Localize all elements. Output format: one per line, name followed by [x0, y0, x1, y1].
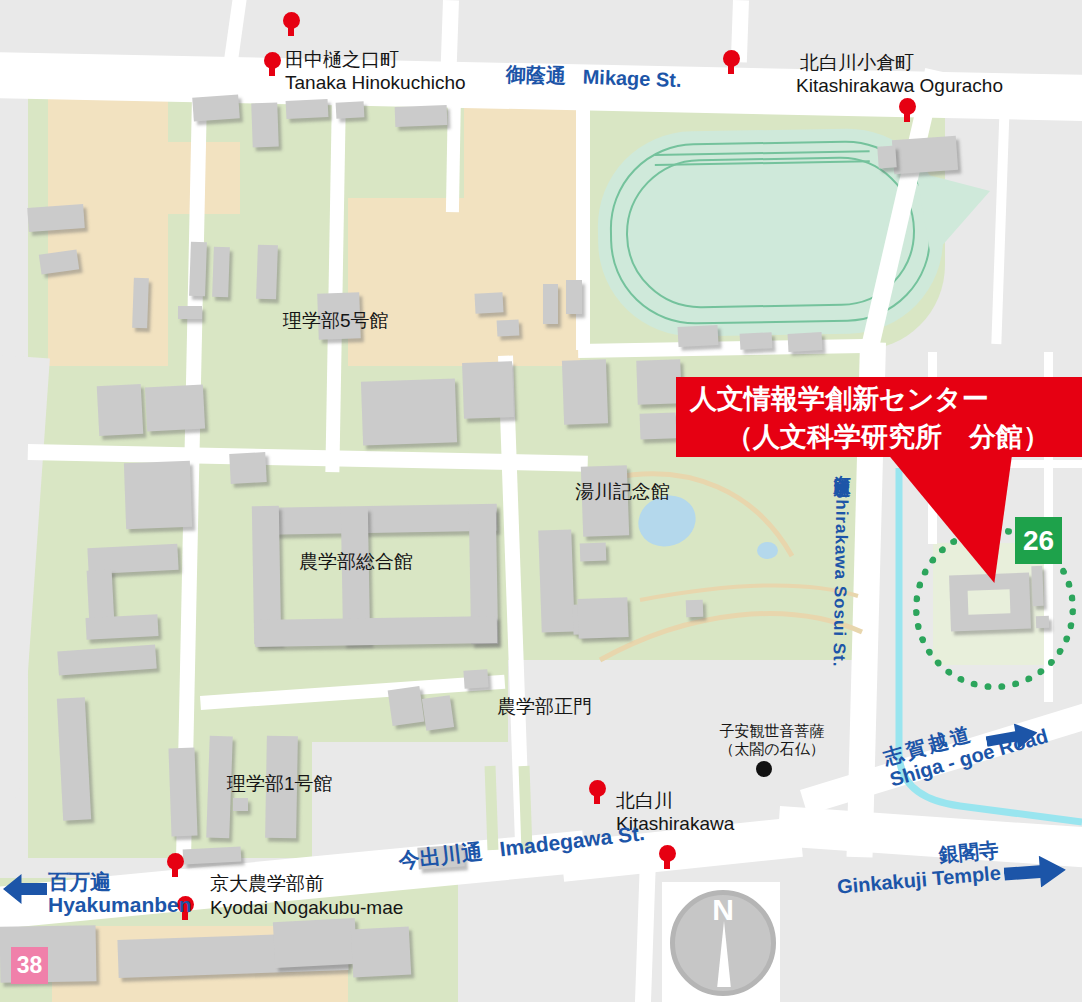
building — [212, 247, 230, 298]
building — [543, 284, 558, 324]
park-path — [640, 585, 858, 600]
destination-hyakumanben-ja: 百万遍 — [48, 870, 192, 893]
bus-stop-pin — [723, 50, 740, 67]
street-shirakawa-sosui-ja: 白河疎水通 — [831, 462, 854, 467]
compass-box: N — [662, 882, 780, 1002]
building — [85, 614, 158, 640]
building — [336, 101, 365, 118]
building — [497, 319, 520, 336]
compass-north-label: N — [675, 893, 771, 927]
building — [273, 918, 357, 968]
landmark-koyasu-line1: 子安観世音菩薩 — [692, 722, 852, 740]
campus-map: 人文情報学創新センター （人文科学研究所 分館） 26 38 田中樋之口町 Ta… — [0, 0, 1082, 1002]
building — [145, 385, 205, 432]
building-nogakubu-sogo — [255, 616, 497, 647]
building — [678, 325, 719, 347]
bus-stop-pin — [167, 853, 184, 870]
street-shirakawa-sosui-en: Shirakawa Sosui St. — [828, 487, 851, 668]
landmark-koyasu: 子安観世音菩薩 （太閤の石仏） — [692, 722, 852, 758]
building — [233, 798, 248, 811]
building — [892, 136, 958, 174]
building — [577, 597, 628, 639]
bus-stop-tanaka-ja: 田中樋之口町 — [285, 49, 399, 71]
building — [538, 529, 575, 632]
label-rigakubu5: 理学部5号館 — [283, 310, 389, 332]
building — [686, 600, 704, 618]
label-nogakubu-sogo: 農学部総合館 — [299, 551, 413, 573]
building — [636, 359, 682, 405]
bus-stop-pin — [264, 52, 281, 69]
building — [178, 306, 202, 319]
building — [132, 278, 149, 328]
bus-stop-tanaka-en: Tanaka Hinokuchicho — [285, 72, 466, 94]
label-yukawa: 湯川記念館 — [575, 481, 670, 503]
bus-stop-pin — [659, 845, 676, 862]
building — [229, 452, 267, 484]
label-rigakubu1: 理学部1号館 — [227, 773, 333, 795]
pond — [757, 542, 778, 559]
bus-stop-oguracho-en: Kitashirakawa Oguracho — [796, 75, 1003, 97]
building — [192, 94, 240, 121]
building — [251, 103, 279, 148]
building — [286, 99, 329, 119]
building — [788, 332, 823, 352]
park-path — [600, 614, 862, 660]
building — [395, 105, 448, 127]
bus-stop-oguracho-ja: 北白川小倉町 — [800, 52, 914, 74]
building — [189, 242, 207, 297]
building — [740, 332, 773, 350]
landmark-koyasu-line2: （太閤の石仏） — [692, 740, 852, 758]
bus-stop-pin — [589, 780, 606, 797]
building — [422, 695, 454, 731]
compass-needle-icon — [707, 921, 741, 987]
building — [168, 748, 197, 837]
building — [580, 543, 607, 562]
bus-stop-pin — [899, 98, 916, 115]
building — [97, 384, 144, 436]
building — [462, 361, 514, 419]
building — [256, 245, 278, 300]
building — [361, 378, 457, 445]
bus-stop-nogakubu-mae-ja: 京大農学部前 — [210, 873, 324, 895]
banner-line1: 人文情報学創新センター — [690, 380, 1082, 418]
street-mikage-ja: 御蔭通 — [506, 63, 567, 87]
building — [566, 280, 582, 314]
banner-line2: （人文科学研究所 分館） — [690, 418, 1082, 456]
building-nogakubu-sogo — [253, 504, 497, 535]
building — [124, 461, 192, 529]
building — [27, 204, 85, 232]
building — [474, 292, 503, 313]
compass: N — [670, 890, 776, 996]
label-nogakubu-seimon: 農学部正門 — [497, 696, 592, 718]
building — [388, 686, 425, 726]
destination-hyakumanben-en: Hyakumanben — [48, 893, 192, 916]
destination-banner: 人文情報学創新センター （人文科学研究所 分館） — [676, 377, 1082, 457]
building — [877, 145, 896, 168]
street-mikage-en: Mikage St. — [582, 66, 682, 91]
badge-building-26: 26 — [1015, 517, 1062, 564]
landmark-koyasu-dot — [756, 761, 772, 777]
bus-stop-kitashirakawa-ja: 北白川 — [616, 790, 673, 812]
building — [183, 846, 242, 864]
building — [463, 669, 488, 689]
building — [640, 412, 677, 439]
building — [562, 359, 608, 424]
bus-stop-pin — [283, 12, 300, 29]
building — [351, 927, 411, 978]
destination-hyakumanben: 百万遍 Hyakumanben — [48, 870, 192, 916]
bus-stop-nogakubu-mae-en: Kyodai Nogakubu-mae — [210, 897, 403, 919]
badge-building-38: 38 — [11, 947, 48, 984]
